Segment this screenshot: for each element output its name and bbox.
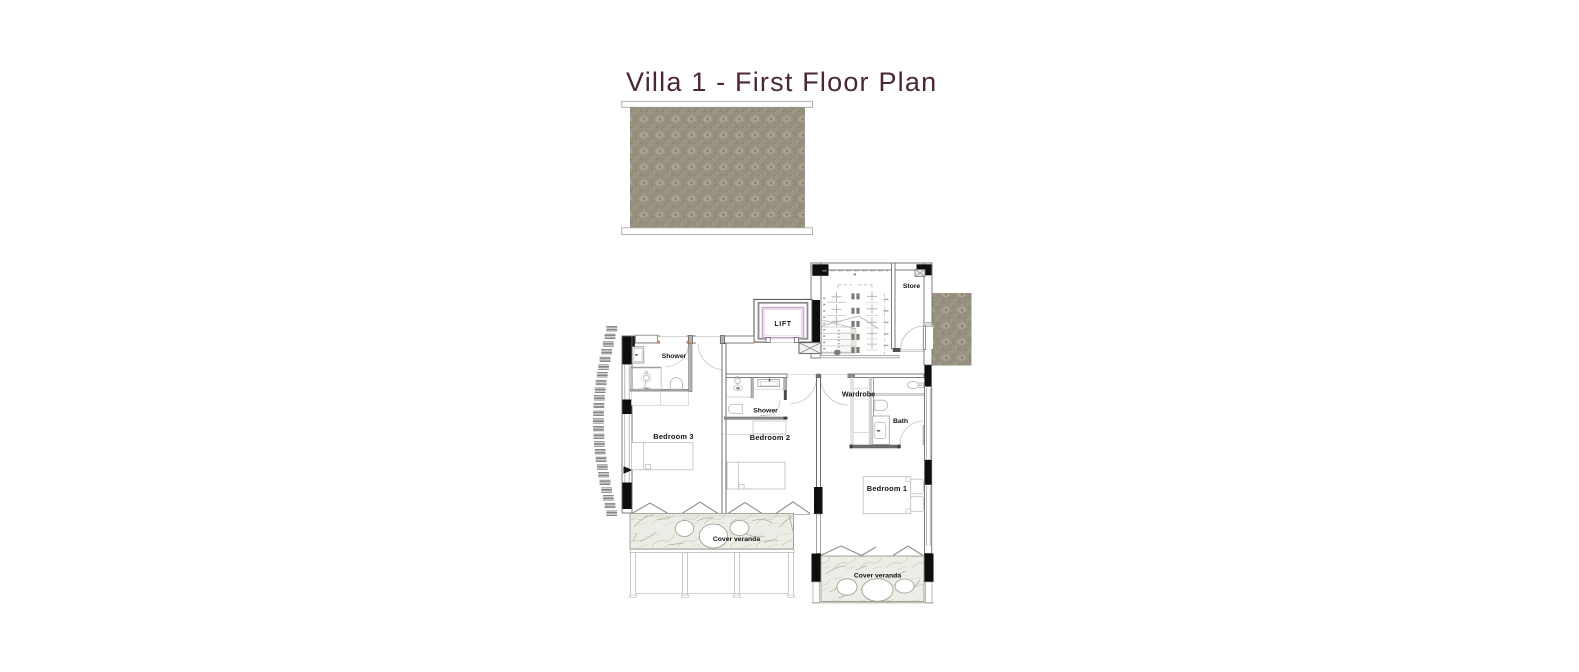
svg-text:Bedroom 2: Bedroom 2 (750, 433, 790, 442)
svg-text:Cover veranda: Cover veranda (854, 573, 901, 580)
svg-text:Bath: Bath (893, 418, 908, 425)
svg-text:Shower: Shower (753, 408, 778, 415)
svg-text:LIFT: LIFT (774, 321, 791, 328)
svg-text:Bedroom 3: Bedroom 3 (653, 432, 693, 441)
svg-text:Bedroom 1: Bedroom 1 (867, 484, 907, 493)
svg-text:Cover veranda: Cover veranda (713, 536, 760, 543)
svg-text:Wardrobe: Wardrobe (842, 389, 875, 398)
svg-text:Shower: Shower (662, 353, 687, 360)
svg-text:Villa 1 - First Floor Plan: Villa 1 - First Floor Plan (626, 67, 937, 97)
svg-text:Store: Store (903, 283, 921, 290)
